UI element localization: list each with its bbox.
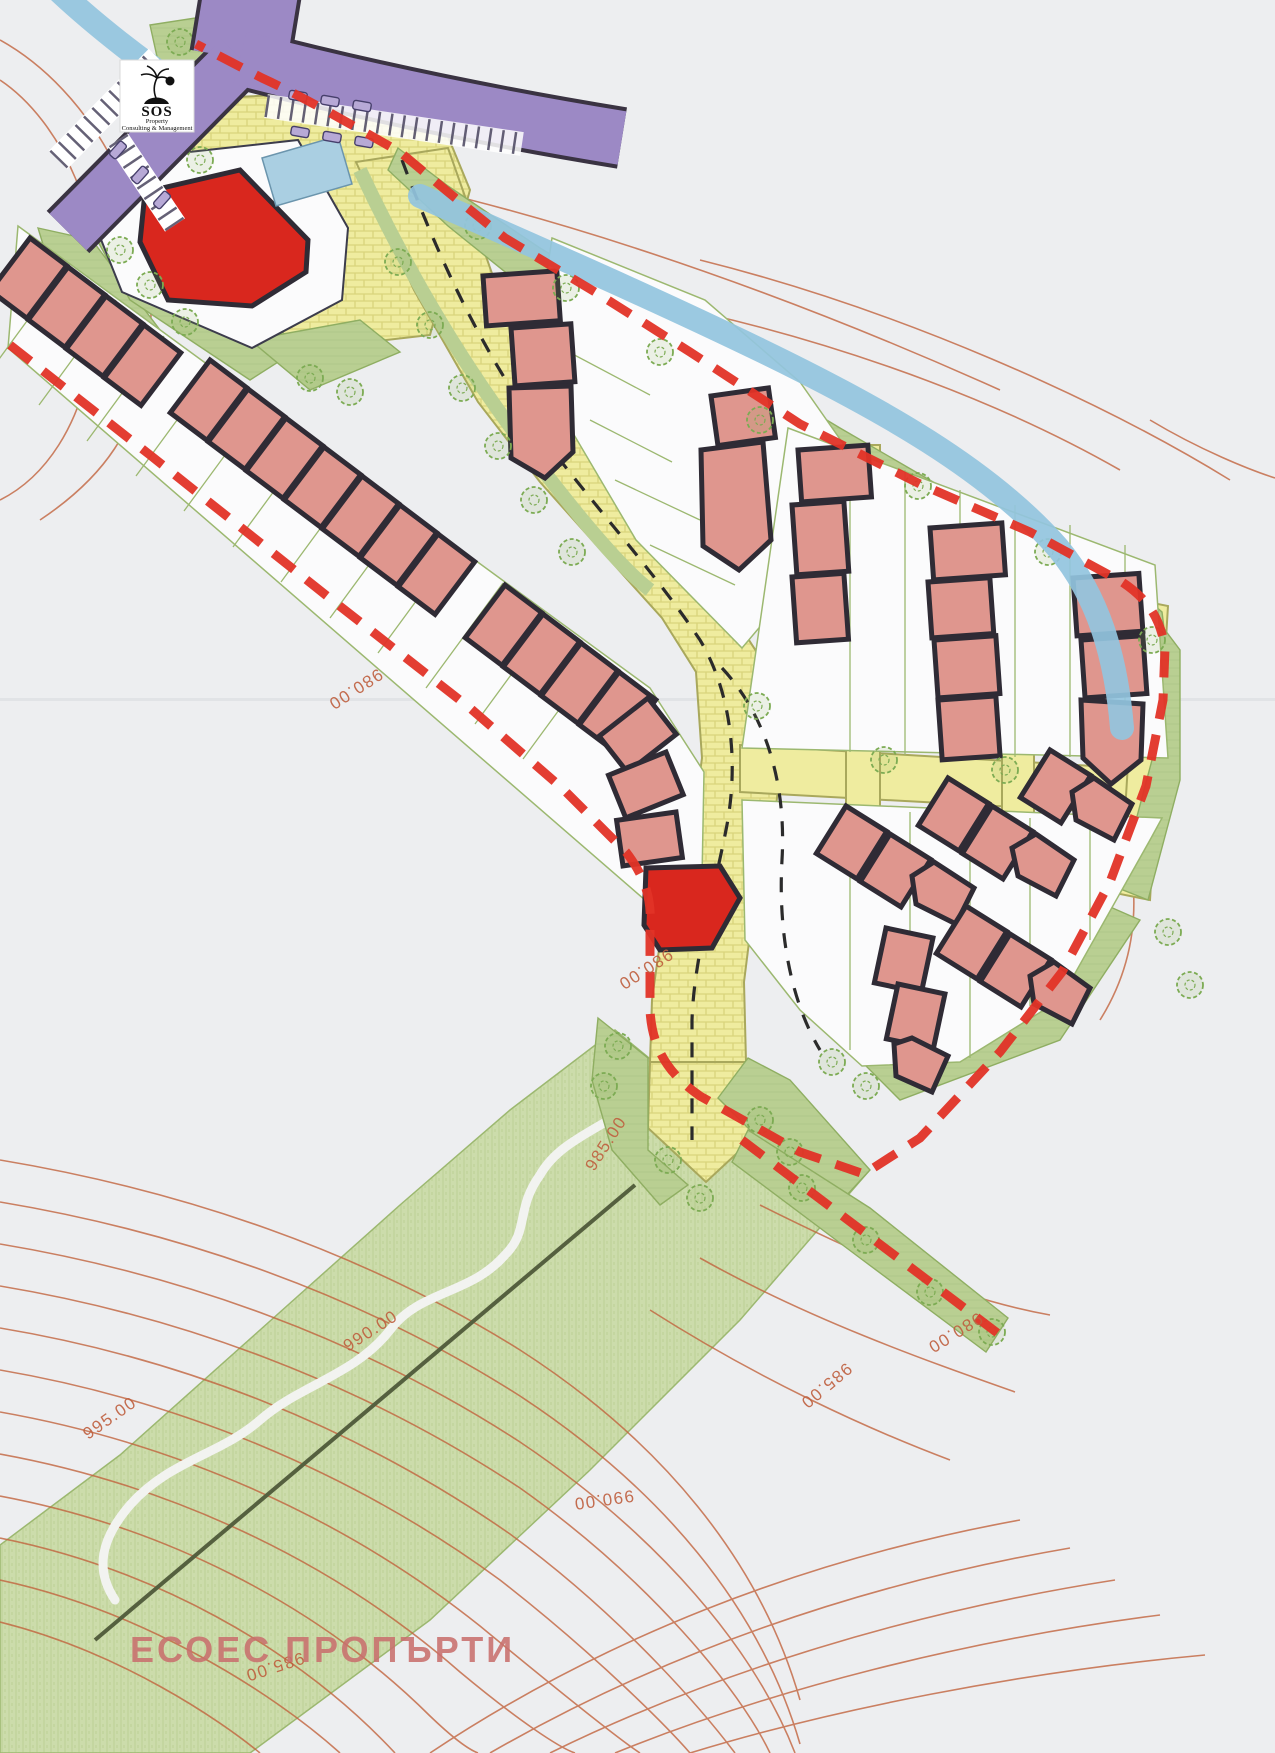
site-plan-page: 980.00980.00985.00990.00995.00980.00985.… bbox=[0, 0, 1275, 1753]
building bbox=[483, 271, 560, 326]
logo-line2: Consulting & Management bbox=[122, 125, 193, 132]
building bbox=[792, 573, 848, 642]
building bbox=[928, 578, 994, 638]
building bbox=[938, 696, 1000, 760]
building bbox=[934, 636, 1000, 698]
map-title: ЕСОЕС ПРОПЪРТИ bbox=[130, 1629, 515, 1670]
logo-line1: Property bbox=[146, 118, 169, 125]
building bbox=[701, 442, 771, 570]
building bbox=[511, 324, 575, 386]
building bbox=[792, 501, 849, 574]
site-plan-map: 980.00980.00985.00990.00995.00980.00985.… bbox=[0, 0, 1275, 1753]
logo-card: SOS Property Consulting & Management bbox=[120, 60, 194, 132]
building bbox=[509, 386, 573, 478]
building bbox=[930, 523, 1005, 580]
